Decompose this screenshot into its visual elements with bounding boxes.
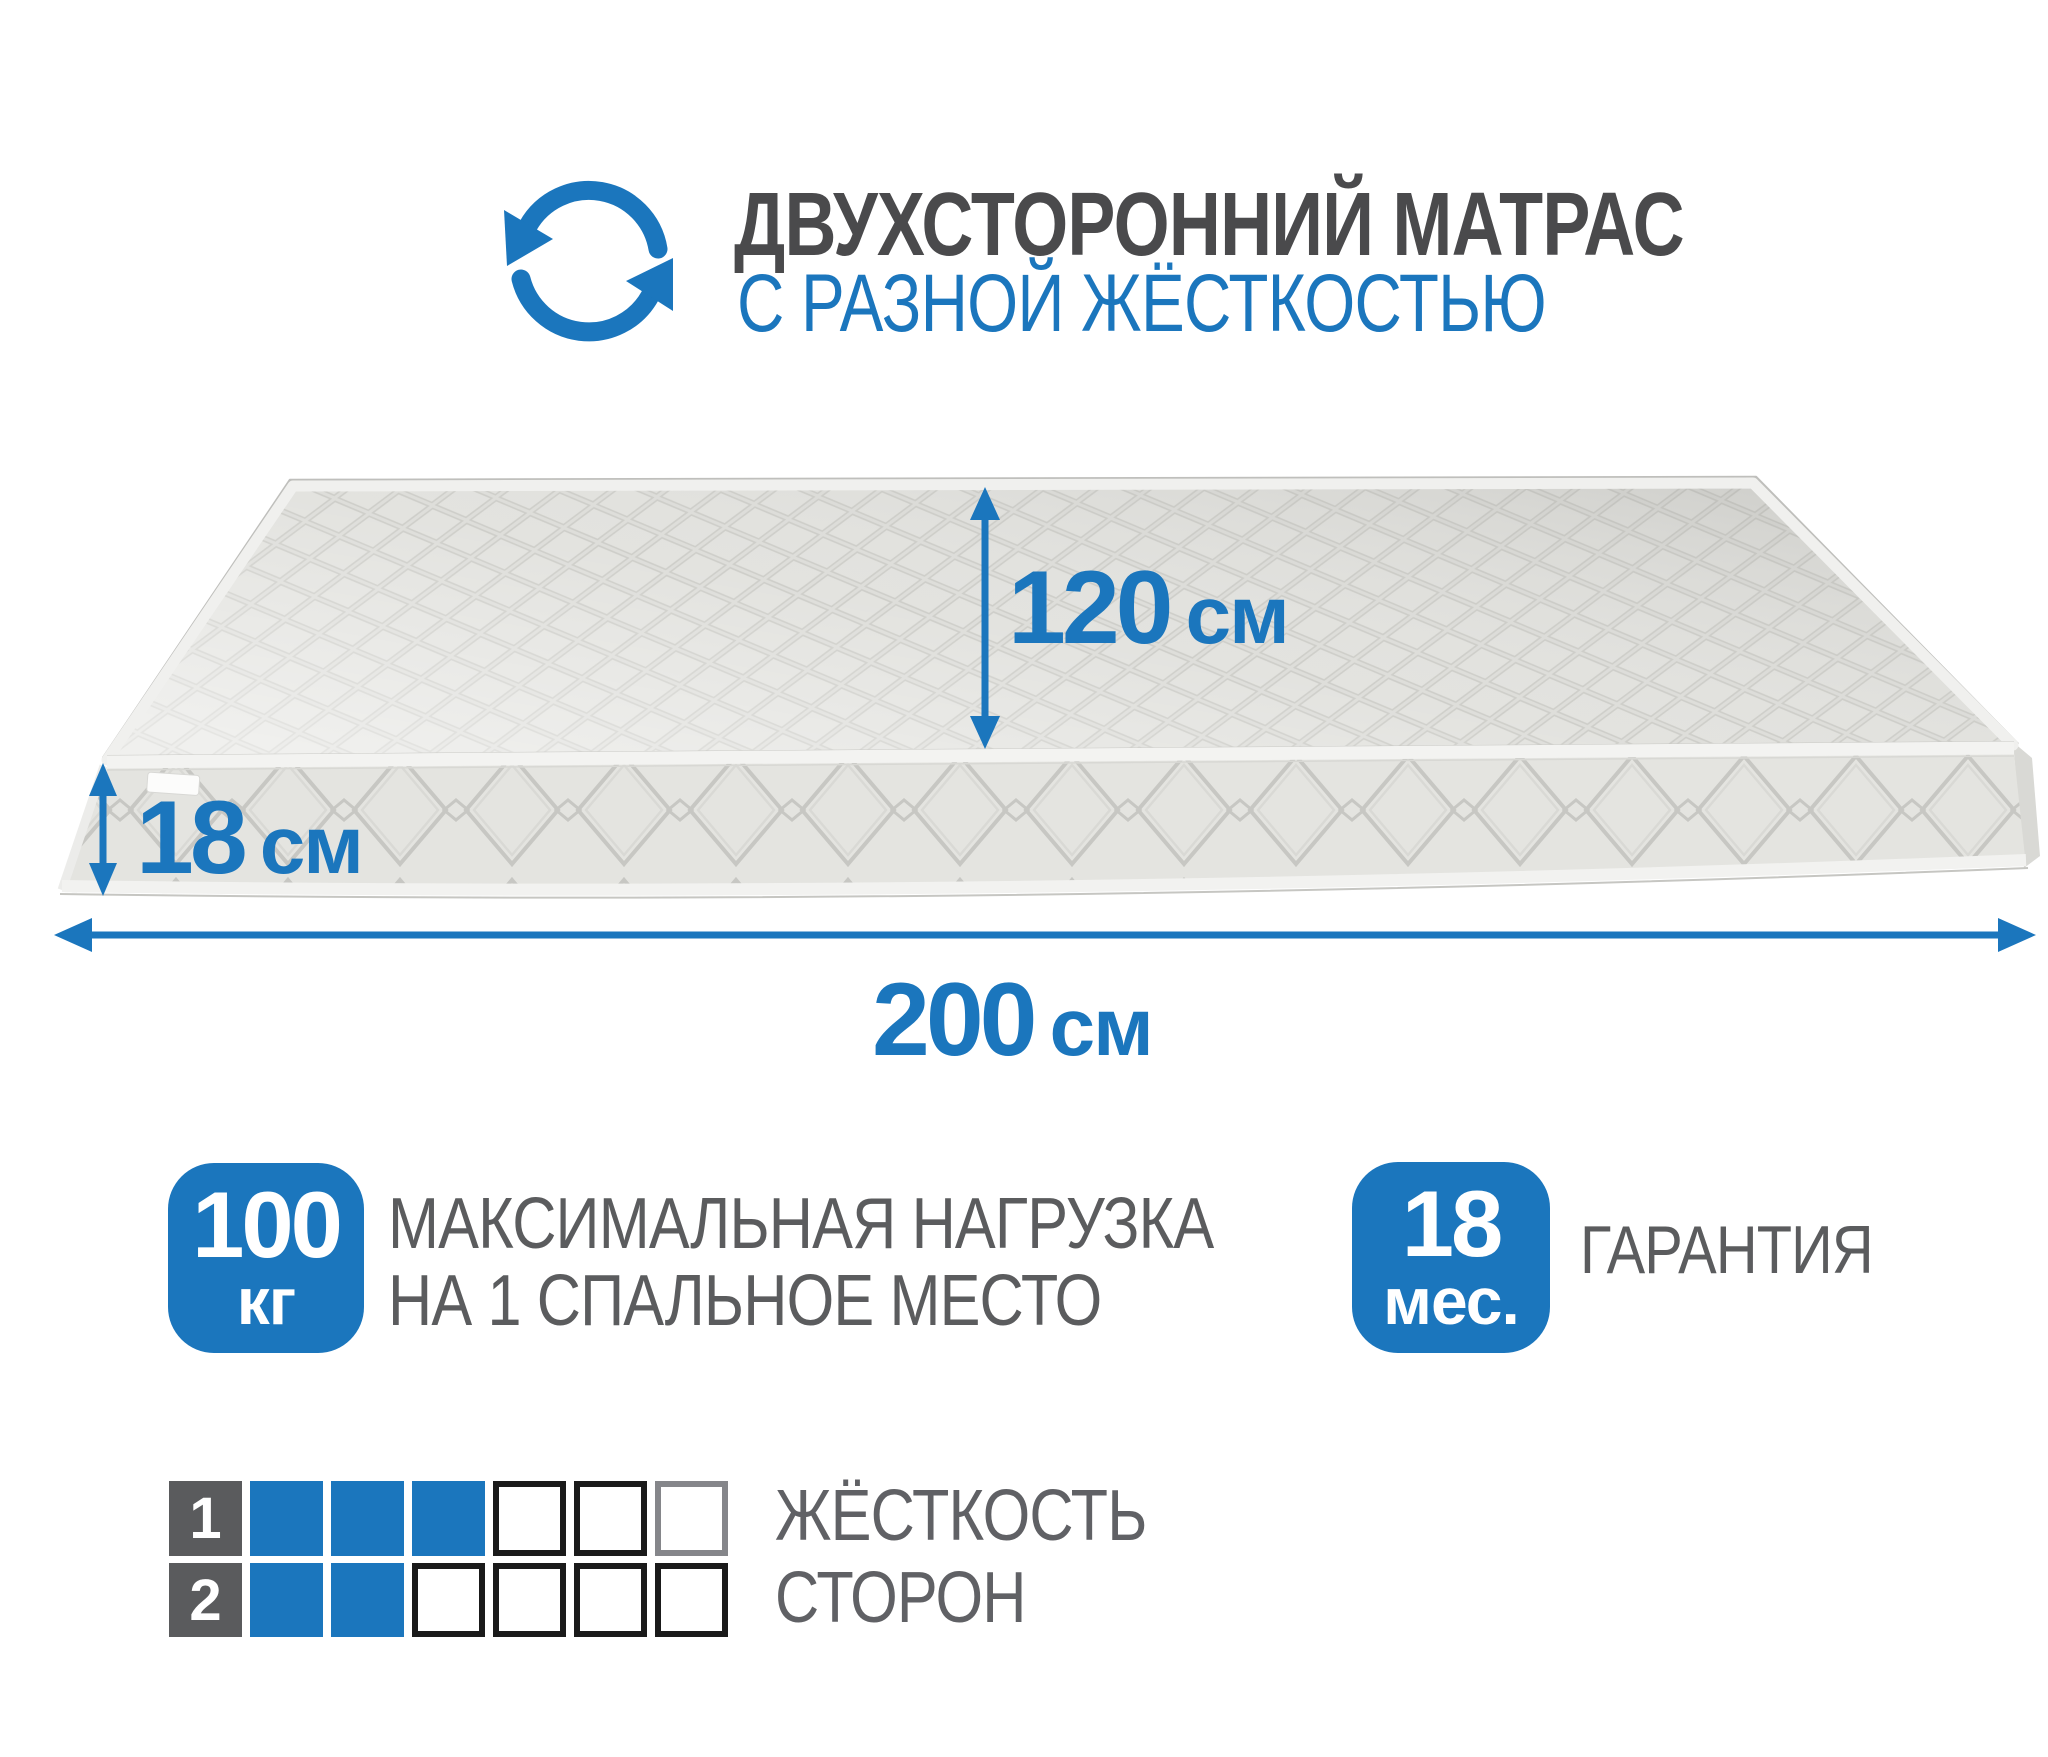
max-load-badge: 100 кг bbox=[168, 1163, 364, 1353]
max-load-caption-line2: НА 1 СПАЛЬНОЕ МЕСТО bbox=[388, 1263, 1101, 1340]
depth-dimension-label: 120 см bbox=[1008, 556, 1288, 660]
depth-unit: см bbox=[1186, 575, 1288, 657]
max-load-value: 100 bbox=[192, 1182, 340, 1268]
firmness-label-line1: ЖЁСТКОСТЬ bbox=[775, 1480, 1212, 1552]
warranty-caption: ГАРАНТИЯ bbox=[1580, 1212, 1924, 1289]
warranty-value: 18 bbox=[1402, 1181, 1501, 1267]
warranty-caption-text: ГАРАНТИЯ bbox=[1580, 1212, 1873, 1289]
length-arrow-200 bbox=[54, 918, 2036, 952]
height-dimension-label: 18 см bbox=[136, 786, 362, 890]
firmness-cell bbox=[655, 1481, 728, 1556]
firmness-side-number: 1 bbox=[169, 1481, 242, 1556]
firmness-cell bbox=[493, 1563, 566, 1637]
firmness-cell bbox=[574, 1481, 647, 1556]
max-load-caption-line1: МАКСИМАЛЬНАЯ НАГРУЗКА bbox=[388, 1186, 1213, 1263]
page-subtitle: С РАЗНОЙ ЖЁСТКОСТЬЮ bbox=[737, 263, 1748, 345]
firmness-label-text2: СТОРОН bbox=[775, 1562, 1026, 1634]
firmness-cell bbox=[493, 1481, 566, 1556]
page-subtitle-text: С РАЗНОЙ ЖЁСТКОСТЬЮ bbox=[737, 263, 1546, 345]
max-load-caption: МАКСИМАЛЬНАЯ НАГРУЗКА НА 1 СПАЛЬНОЕ МЕСТ… bbox=[388, 1186, 1359, 1340]
firmness-cell bbox=[331, 1481, 404, 1556]
length-unit: см bbox=[1050, 987, 1152, 1069]
firmness-label-text1: ЖЁСТКОСТЬ bbox=[775, 1480, 1147, 1552]
length-dimension-label: 200 см bbox=[872, 968, 1152, 1072]
page-title-text: ДВУХСТОРОННИЙ МАТРАС bbox=[734, 180, 1684, 270]
length-value: 200 bbox=[872, 968, 1034, 1072]
firmness-cell bbox=[412, 1481, 485, 1556]
firmness-cell bbox=[574, 1563, 647, 1637]
warranty-badge: 18 мес. bbox=[1352, 1162, 1550, 1353]
depth-value: 120 bbox=[1008, 556, 1170, 660]
firmness-cell bbox=[250, 1481, 323, 1556]
firmness-cell bbox=[655, 1563, 728, 1637]
height-unit: см bbox=[260, 805, 362, 887]
firmness-cell bbox=[412, 1563, 485, 1637]
max-load-unit: кг bbox=[237, 1268, 296, 1334]
warranty-unit: мес. bbox=[1383, 1268, 1519, 1334]
mattress-infographic: ДВУХСТОРОННИЙ МАТРАС С РАЗНОЙ ЖЁСТКОСТЬЮ… bbox=[0, 0, 2048, 1757]
firmness-row-side1: 1 bbox=[169, 1481, 728, 1556]
firmness-cell bbox=[250, 1563, 323, 1637]
page-title: ДВУХСТОРОННИЙ МАТРАС bbox=[734, 180, 1921, 270]
rotate-arrows-icon bbox=[504, 190, 673, 331]
firmness-cell bbox=[331, 1563, 404, 1637]
height-value: 18 bbox=[136, 786, 244, 890]
firmness-side-number: 2 bbox=[169, 1563, 242, 1637]
firmness-label-line2: СТОРОН bbox=[775, 1562, 1070, 1634]
firmness-row-side2: 2 bbox=[169, 1563, 728, 1637]
